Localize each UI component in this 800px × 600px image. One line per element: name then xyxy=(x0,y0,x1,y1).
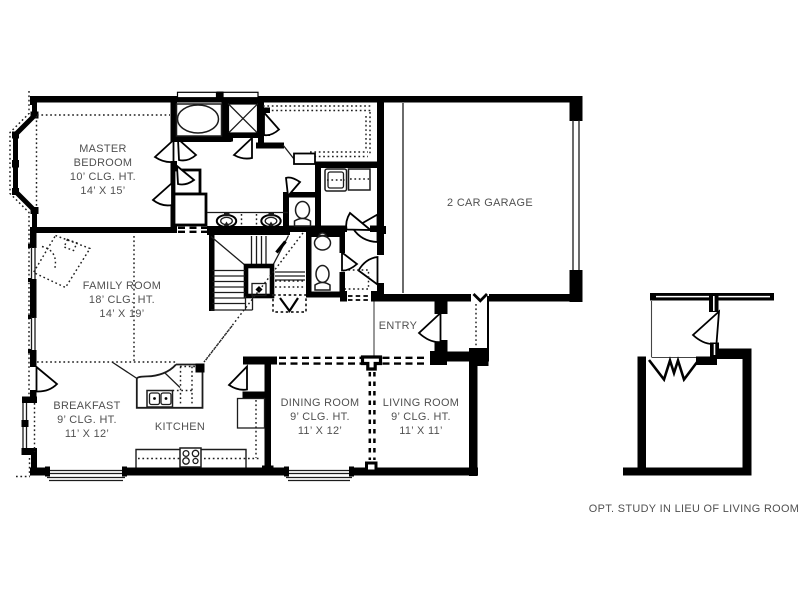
svg-text:18’ CLG. HT.: 18’ CLG. HT. xyxy=(89,294,155,306)
svg-text:11’ X 12’: 11’ X 12’ xyxy=(298,425,342,437)
svg-text:ENTRY: ENTRY xyxy=(379,320,418,332)
svg-text:14’ X 15’: 14’ X 15’ xyxy=(80,185,125,197)
svg-text:11’ X 12’: 11’ X 12’ xyxy=(65,428,109,440)
svg-text:9’ CLG. HT.: 9’ CLG. HT. xyxy=(290,411,350,423)
svg-text:11’ X 11’: 11’ X 11’ xyxy=(399,425,443,437)
svg-text:FAMILY ROOM: FAMILY ROOM xyxy=(83,280,161,292)
svg-text:9’ CLG. HT.: 9’ CLG. HT. xyxy=(391,411,451,423)
svg-text:2 CAR GARAGE: 2 CAR GARAGE xyxy=(447,197,533,209)
svg-text:10’ CLG. HT.: 10’ CLG. HT. xyxy=(70,171,136,183)
svg-text:KITCHEN: KITCHEN xyxy=(155,421,205,433)
svg-text:LIVING ROOM: LIVING ROOM xyxy=(383,397,459,409)
svg-text:BREAKFAST: BREAKFAST xyxy=(53,400,120,412)
svg-text:BEDROOM: BEDROOM xyxy=(74,157,133,169)
svg-text:9’ CLG. HT.: 9’ CLG. HT. xyxy=(57,414,117,426)
svg-text:14’ X 19’: 14’ X 19’ xyxy=(99,308,144,320)
svg-text:OPT. STUDY IN LIEU OF LIVING R: OPT. STUDY IN LIEU OF LIVING ROOM xyxy=(589,503,799,515)
svg-text:MASTER: MASTER xyxy=(79,143,126,155)
svg-text:DINING ROOM: DINING ROOM xyxy=(281,397,360,409)
